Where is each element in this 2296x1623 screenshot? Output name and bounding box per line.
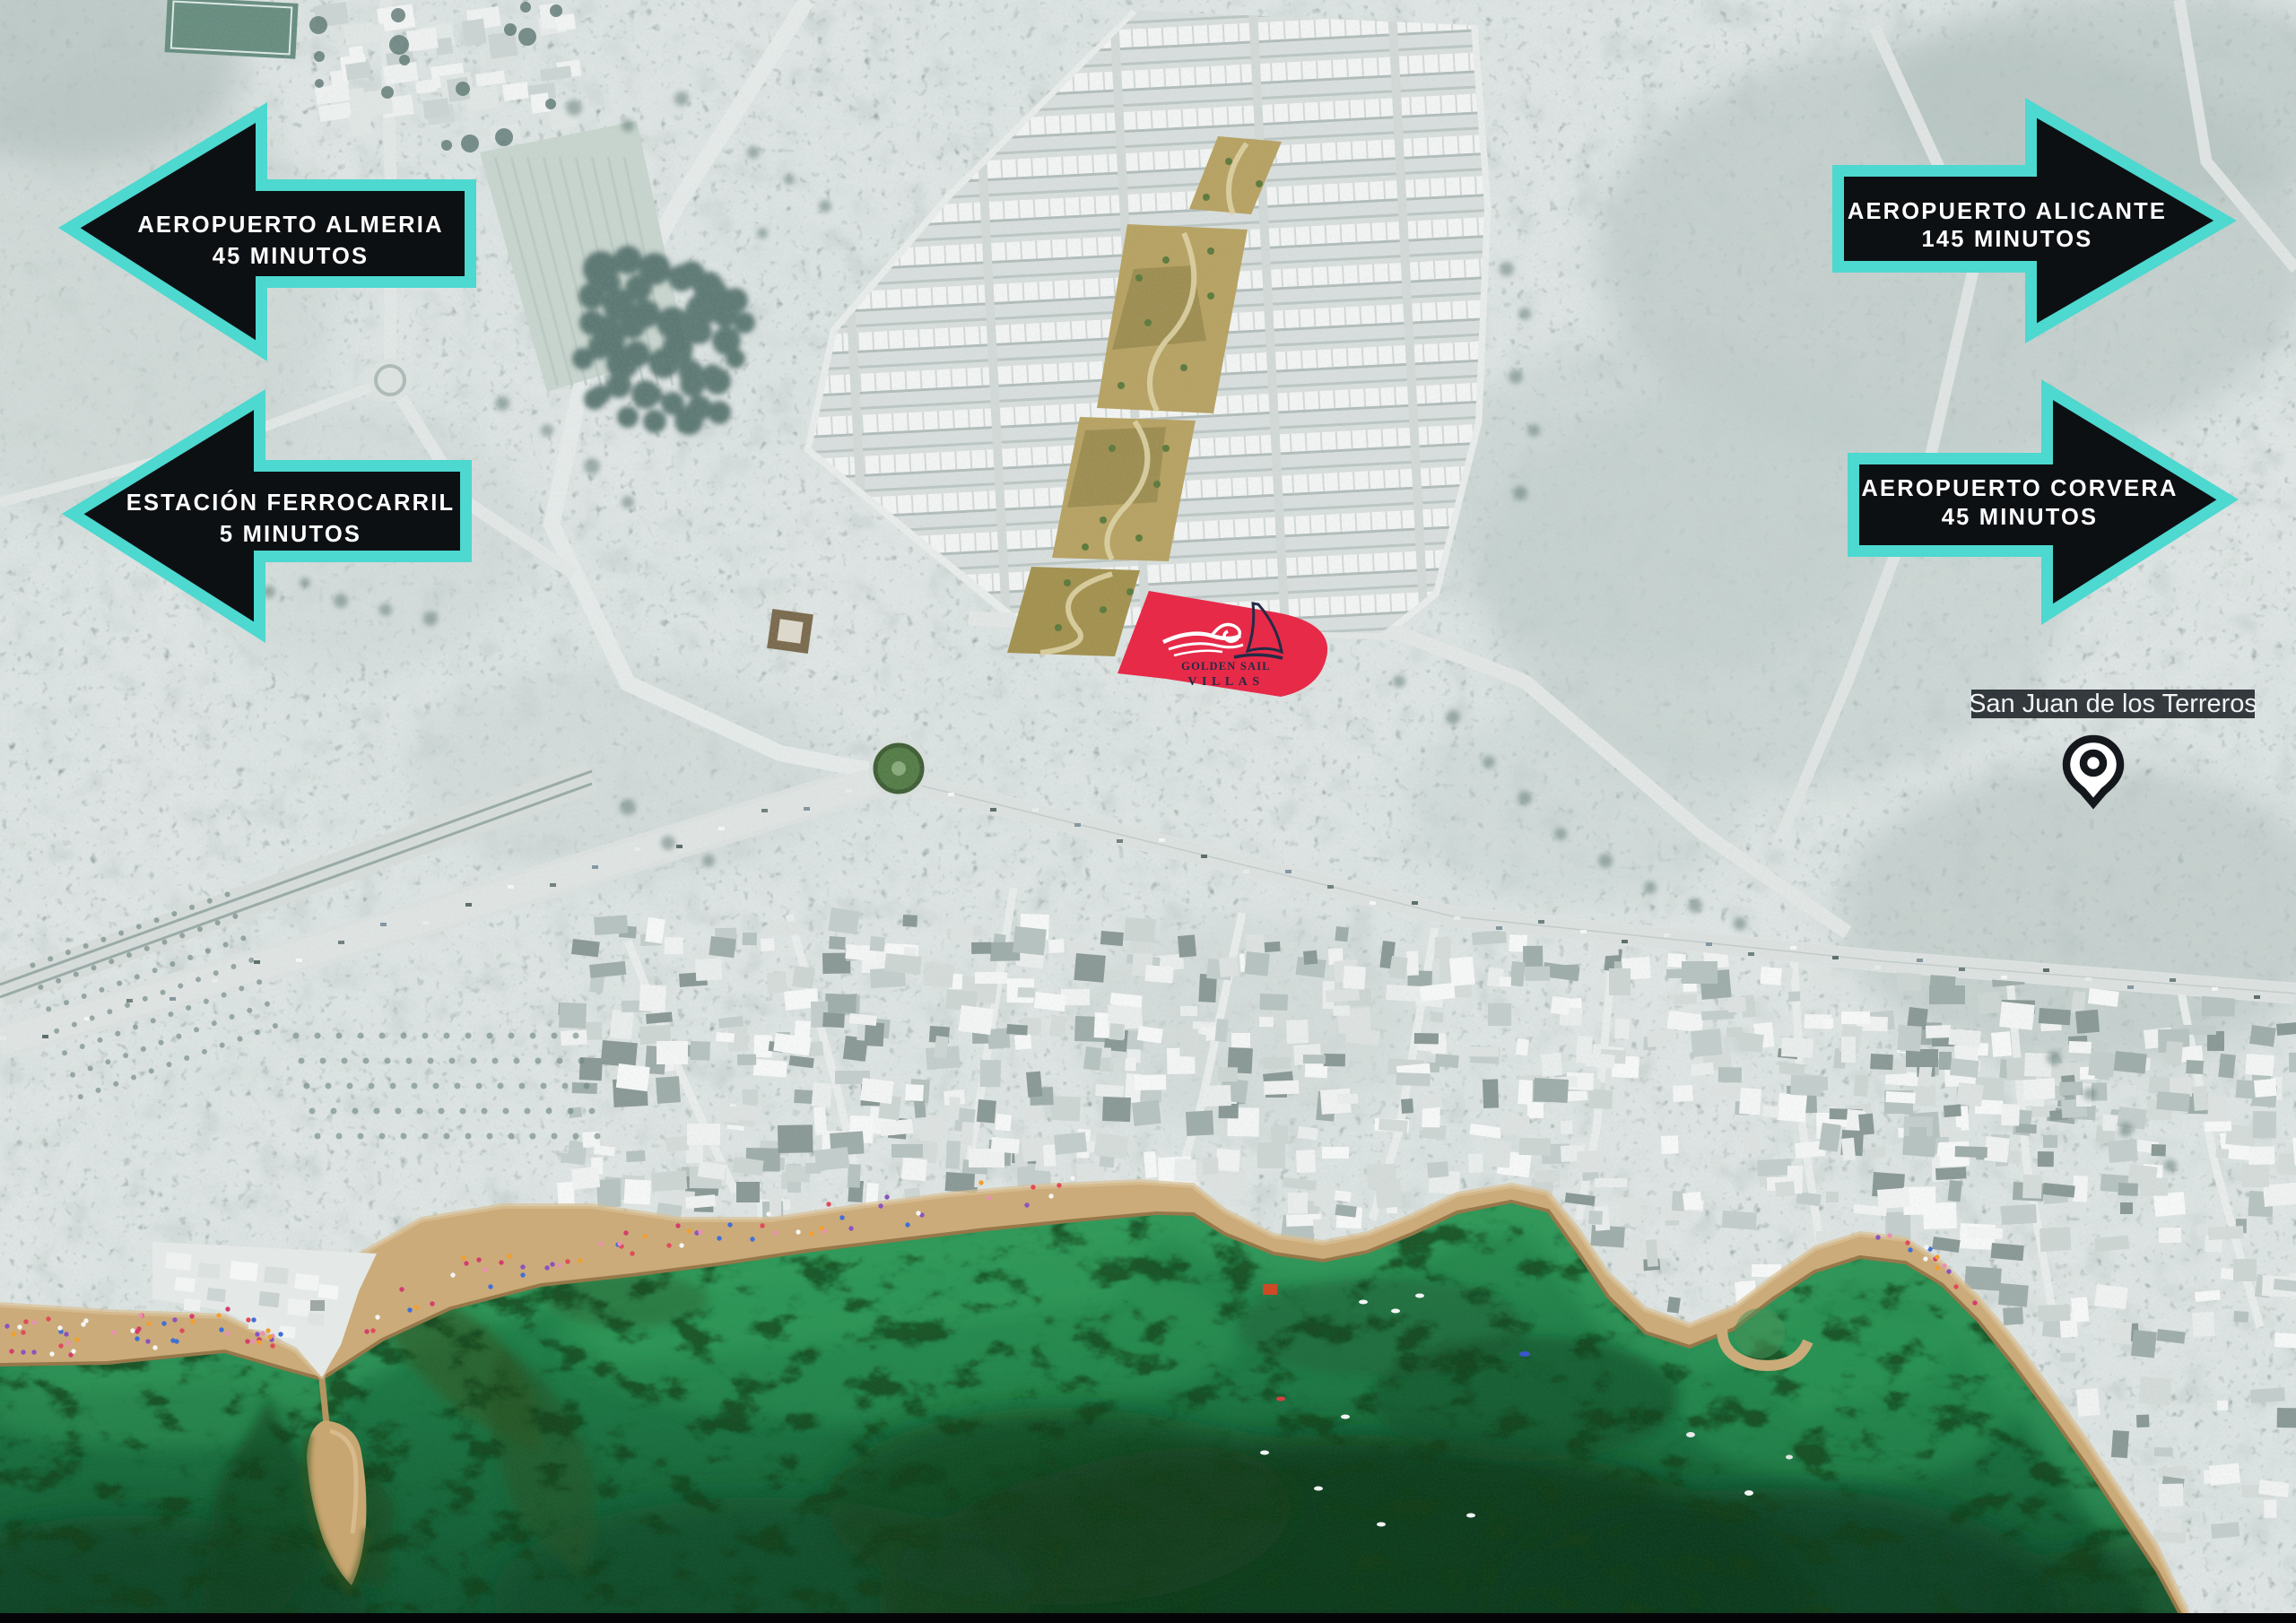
svg-text:AEROPUERTO ALMERIA: AEROPUERTO ALMERIA [137,213,443,238]
svg-text:AEROPUERTO CORVERA: AEROPUERTO CORVERA [1861,476,2178,501]
svg-text:San Juan de los Terreros: San Juan de los Terreros [1969,690,2257,718]
svg-text:GOLDEN SAIL: GOLDEN SAIL [1181,660,1271,673]
svg-text:145 MINUTOS: 145 MINUTOS [1922,227,2093,252]
svg-text:45 MINUTOS: 45 MINUTOS [1942,505,2099,530]
svg-text:5 MINUTOS: 5 MINUTOS [220,522,361,547]
svg-text:VILLAS: VILLAS [1187,675,1264,689]
svg-text:ESTACIÓN FERROCARRIL: ESTACIÓN FERROCARRIL [126,489,456,516]
svg-text:45 MINUTOS: 45 MINUTOS [213,244,370,269]
svg-text:AEROPUERTO ALICANTE: AEROPUERTO ALICANTE [1848,199,2167,224]
